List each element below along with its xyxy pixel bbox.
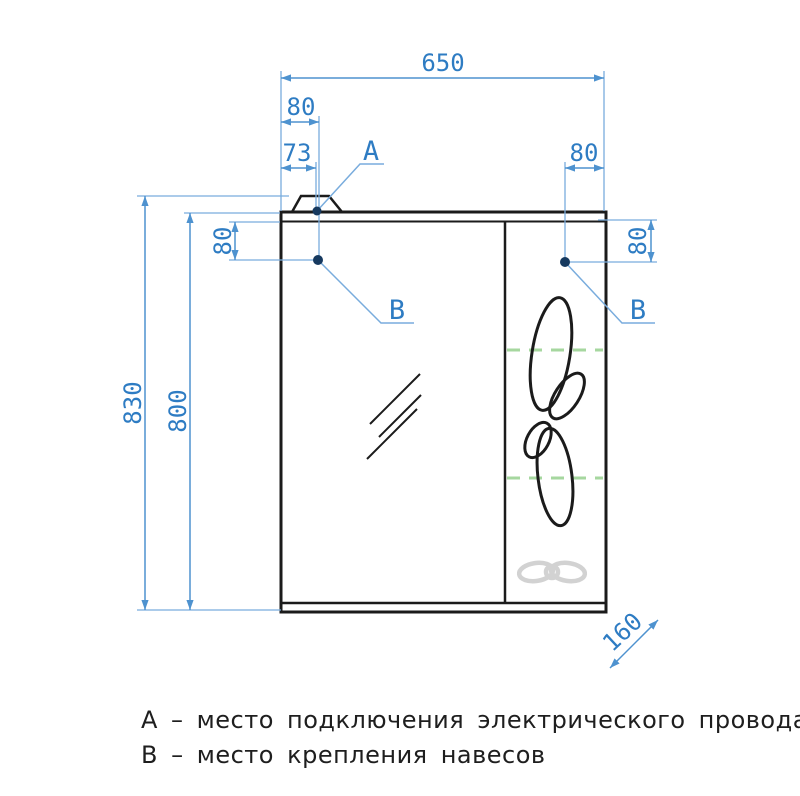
door-swirl-decor (519, 295, 591, 528)
dim-width-650: 650 (281, 49, 604, 78)
dim-label-width: 650 (421, 49, 464, 77)
cabinet-drawing: 650 80 73 80 830 800 80 80 160 А (0, 0, 800, 796)
point-b-left-hinge (313, 255, 323, 265)
dim-label-lamp-offset: 73 (283, 139, 312, 167)
shelf-lines (507, 350, 603, 478)
door-knot-decor (518, 561, 586, 584)
dim-label-height-body: 800 (164, 389, 192, 432)
callout-b-right-letter: В (630, 295, 646, 326)
dim-height-830: 830 (119, 196, 147, 610)
cabinet-outline (281, 196, 606, 612)
callout-a-letter: А (363, 136, 379, 167)
dim-label-hinge-left: 80 (209, 227, 237, 256)
dim-top-left-80: 80 (281, 93, 319, 122)
dim-lamp-73: 73 (281, 139, 316, 168)
dim-hinge-left-80: 80 (209, 222, 237, 260)
dim-label-hinge-right: 80 (624, 227, 652, 256)
dim-top-right-80: 80 (565, 139, 604, 168)
legend-line-a: А – место подключения электрического про… (141, 703, 800, 738)
dim-depth-160: 160 (597, 607, 658, 668)
callout-a: А (313, 136, 385, 216)
dim-label-depth: 160 (597, 607, 648, 657)
dim-label-top-left-offset: 80 (287, 93, 316, 121)
callout-b-left: В (313, 255, 414, 326)
point-b-right-hinge (560, 257, 570, 267)
dim-height-800: 800 (164, 213, 192, 610)
technical-drawing-page: { "drawing": { "dims": { "width": "650",… (0, 0, 800, 796)
legend: А – место подключения электрического про… (141, 703, 800, 773)
dim-label-top-right-offset: 80 (570, 139, 599, 167)
mirror-hatch (367, 374, 421, 459)
legend-line-b: В – место крепления навесов (141, 738, 800, 773)
dim-label-height-overall: 830 (119, 381, 147, 424)
point-a-electrical (313, 207, 322, 216)
dim-hinge-right-80: 80 (624, 220, 652, 262)
callout-b-left-letter: В (389, 295, 405, 326)
